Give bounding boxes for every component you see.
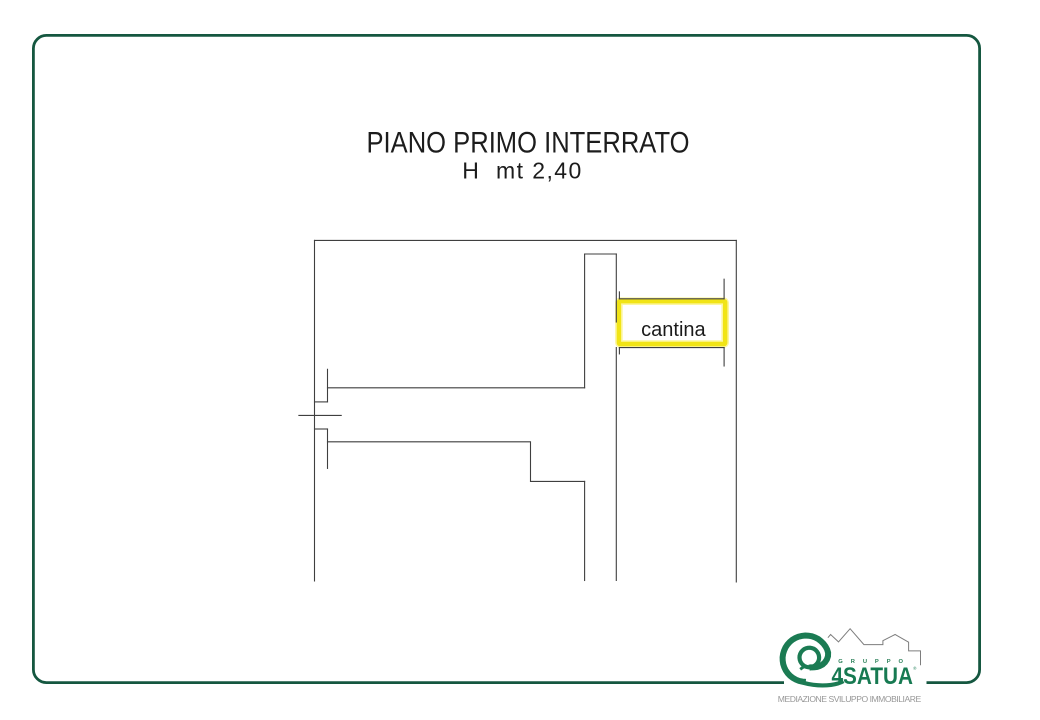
svg-text:4SATUA: 4SATUA <box>832 663 914 690</box>
svg-text:cantina: cantina <box>641 319 706 341</box>
svg-text:MEDIAZIONE SVILUPPO IMMOBILIAR: MEDIAZIONE SVILUPPO IMMOBILIARE <box>778 694 922 704</box>
svg-text:H mt 2,40: H mt 2,40 <box>462 158 581 184</box>
svg-text:PIANO PRIMO INTERRATO: PIANO PRIMO INTERRATO <box>367 127 690 160</box>
